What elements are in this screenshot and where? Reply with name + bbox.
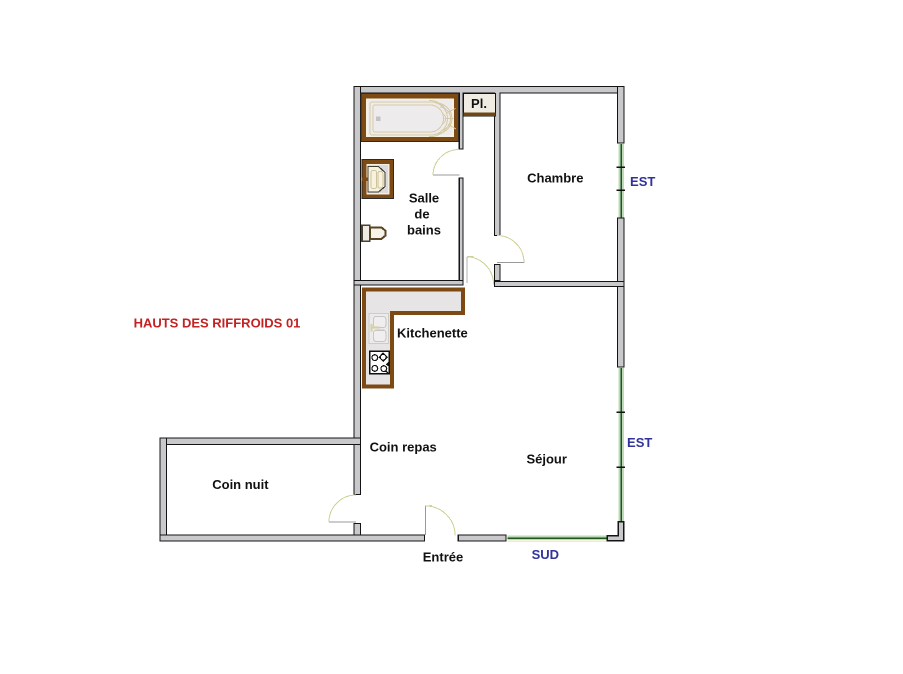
svg-text:Kitchenette: Kitchenette — [397, 326, 468, 341]
svg-text:Salle: Salle — [409, 190, 439, 205]
svg-text:HAUTS DES RIFFROIDS 01: HAUTS DES RIFFROIDS 01 — [134, 315, 301, 330]
svg-text:Pl.: Pl. — [471, 96, 487, 111]
svg-text:Entrée: Entrée — [423, 549, 463, 564]
svg-text:Coin nuit: Coin nuit — [212, 477, 269, 492]
svg-text:Séjour: Séjour — [526, 452, 566, 467]
svg-text:bains: bains — [407, 222, 441, 237]
svg-text:Coin repas: Coin repas — [370, 440, 437, 455]
svg-text:de: de — [414, 206, 429, 221]
svg-text:SUD: SUD — [532, 547, 559, 562]
svg-text:EST: EST — [630, 174, 655, 189]
svg-text:Chambre: Chambre — [527, 171, 583, 186]
svg-text:EST: EST — [627, 435, 652, 450]
